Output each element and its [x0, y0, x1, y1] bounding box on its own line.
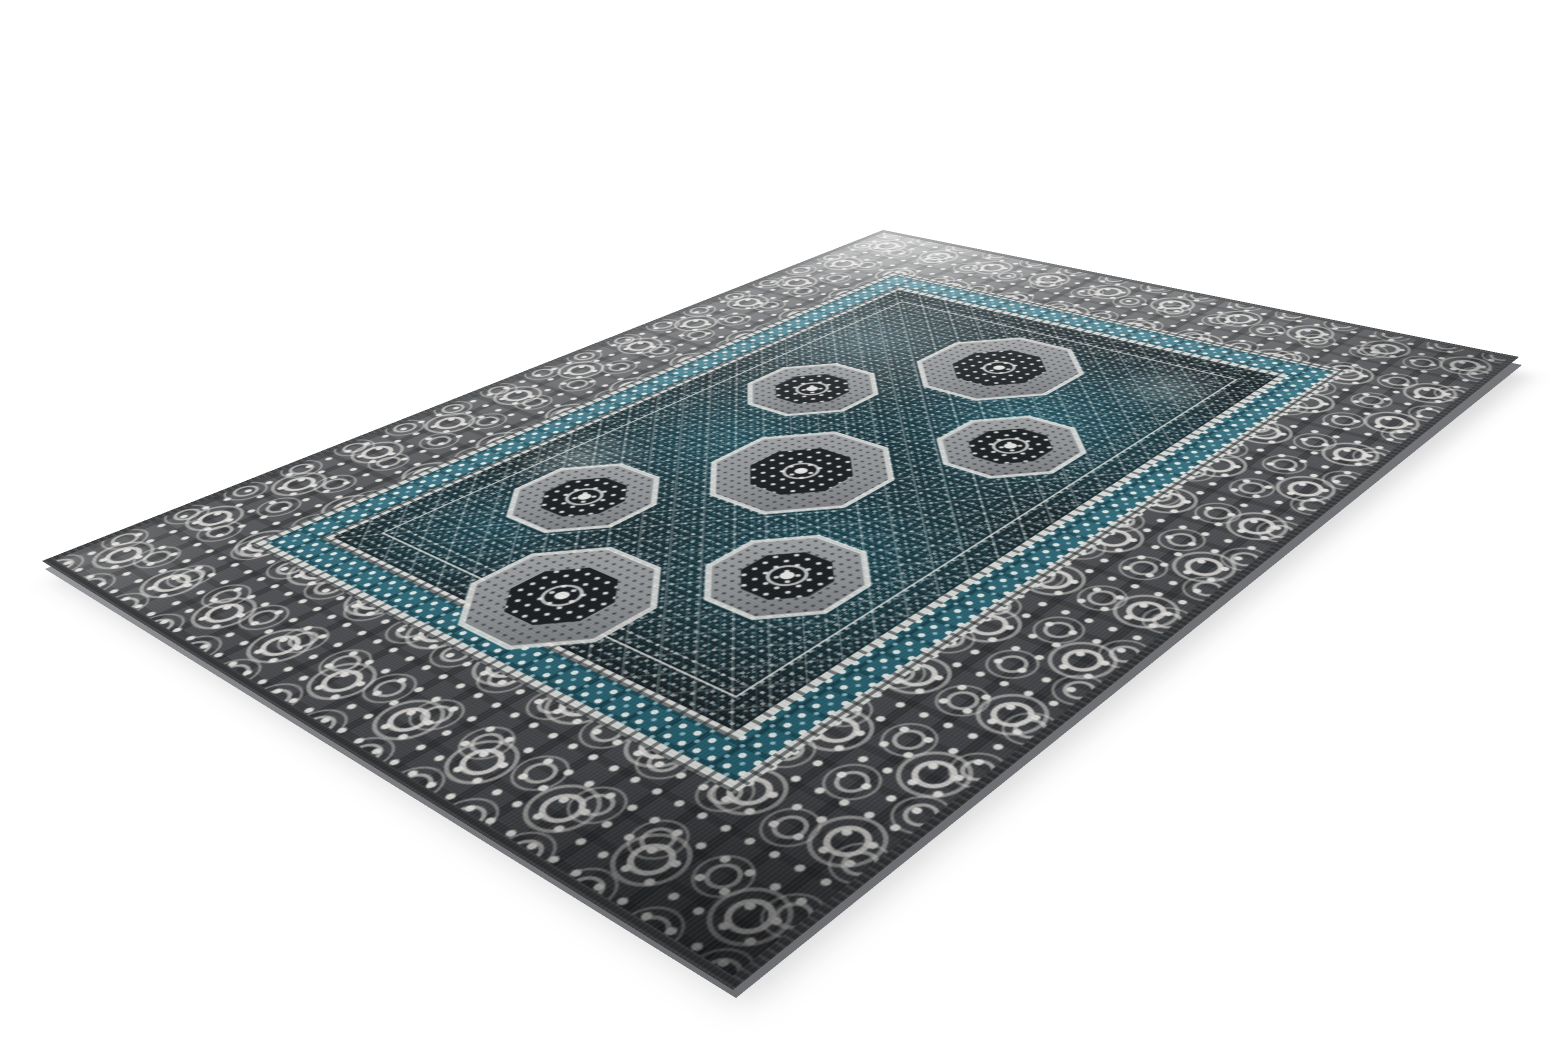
product-photo [0, 0, 1560, 1040]
rug [42, 230, 1519, 990]
lighting-overlay [42, 230, 1519, 990]
